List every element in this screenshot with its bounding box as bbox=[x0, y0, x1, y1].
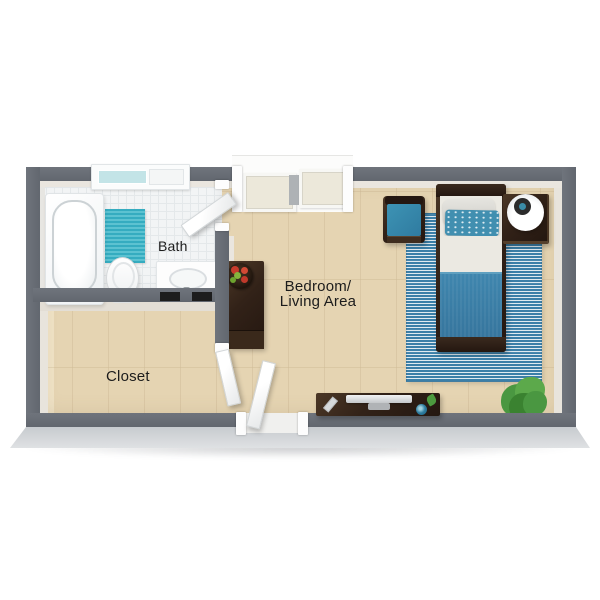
bedroom-label: Bedroom/ Living Area bbox=[252, 279, 384, 309]
lamp-finial bbox=[519, 203, 526, 210]
alcove-jamb bbox=[343, 166, 353, 212]
wall-interior bbox=[215, 229, 229, 346]
sliding-door-wardrobe bbox=[232, 155, 353, 212]
table-lamp bbox=[507, 194, 545, 232]
bathtub-basin bbox=[52, 200, 97, 294]
mug bbox=[416, 404, 427, 415]
window-frosted-pane bbox=[149, 169, 184, 185]
bath-label: Bath bbox=[158, 239, 188, 254]
bath-window bbox=[91, 164, 190, 190]
wall-face bbox=[554, 188, 562, 413]
door-jamb bbox=[236, 412, 246, 435]
vanity-leg bbox=[160, 292, 180, 301]
desk-plant-sprig bbox=[425, 393, 438, 406]
fruit-red bbox=[241, 276, 248, 283]
bath-rug bbox=[105, 209, 145, 263]
cabinet-front-face bbox=[228, 330, 264, 349]
wall-right bbox=[562, 167, 576, 427]
tv bbox=[346, 395, 412, 403]
fruit-bowl bbox=[227, 263, 253, 289]
armchair-cushion bbox=[387, 204, 421, 236]
fruit-green bbox=[230, 277, 236, 283]
bedroom-label-line1: Bedroom/ bbox=[252, 279, 384, 294]
closet-label: Closet bbox=[106, 369, 150, 384]
floor-plan: Bath Closet Bedroom/ Living Area bbox=[0, 0, 600, 600]
sliding-panel bbox=[299, 169, 349, 208]
media-desk bbox=[316, 393, 440, 416]
bed-footboard bbox=[436, 337, 506, 352]
bedroom-label-line2: Living Area bbox=[252, 294, 384, 309]
armchair-front-rail bbox=[387, 236, 421, 243]
wall-face bbox=[40, 311, 48, 413]
wall-bottom bbox=[26, 413, 238, 427]
tv-stand bbox=[368, 403, 390, 410]
bed-accent-pillow bbox=[445, 210, 499, 237]
bed-blanket bbox=[440, 272, 502, 341]
door-jamb bbox=[215, 223, 229, 231]
door-jamb bbox=[215, 180, 229, 189]
wall-bath-closet bbox=[33, 288, 215, 302]
door-jamb bbox=[298, 412, 308, 435]
toilet-seat bbox=[112, 262, 135, 291]
bed-sheet bbox=[440, 236, 502, 273]
window-glass bbox=[98, 170, 147, 184]
armchair bbox=[383, 196, 425, 243]
remote bbox=[323, 397, 338, 413]
vanity-leg bbox=[192, 292, 212, 301]
fruit-red bbox=[241, 267, 248, 274]
wall-top bbox=[349, 167, 576, 181]
twin-bed bbox=[436, 184, 506, 352]
